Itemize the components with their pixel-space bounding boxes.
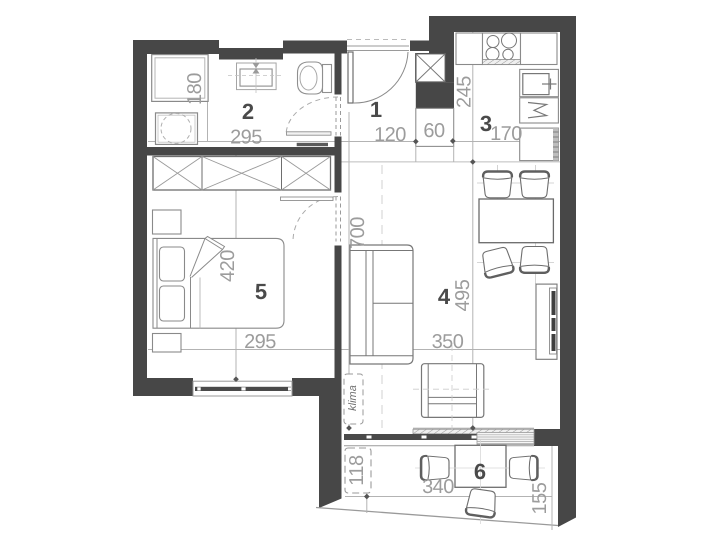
svg-text:495: 495	[452, 279, 474, 311]
svg-text:118: 118	[346, 455, 368, 486]
svg-text:700: 700	[347, 217, 369, 249]
svg-text:120: 120	[374, 124, 406, 146]
svg-text:6: 6	[474, 459, 486, 484]
svg-text:420: 420	[217, 250, 239, 282]
svg-text:2: 2	[242, 99, 254, 124]
svg-text:klima: klima	[347, 385, 359, 411]
svg-text:4: 4	[438, 284, 451, 309]
svg-text:350: 350	[432, 331, 464, 353]
svg-text:295: 295	[244, 331, 276, 353]
svg-text:1: 1	[370, 97, 382, 122]
svg-text:340: 340	[422, 476, 454, 498]
svg-text:295: 295	[230, 127, 262, 149]
svg-text:245: 245	[454, 76, 476, 108]
svg-text:5: 5	[255, 279, 267, 304]
svg-text:155: 155	[529, 482, 551, 514]
svg-text:170: 170	[490, 123, 522, 145]
svg-text:180: 180	[184, 73, 206, 105]
svg-text:60: 60	[423, 120, 445, 142]
